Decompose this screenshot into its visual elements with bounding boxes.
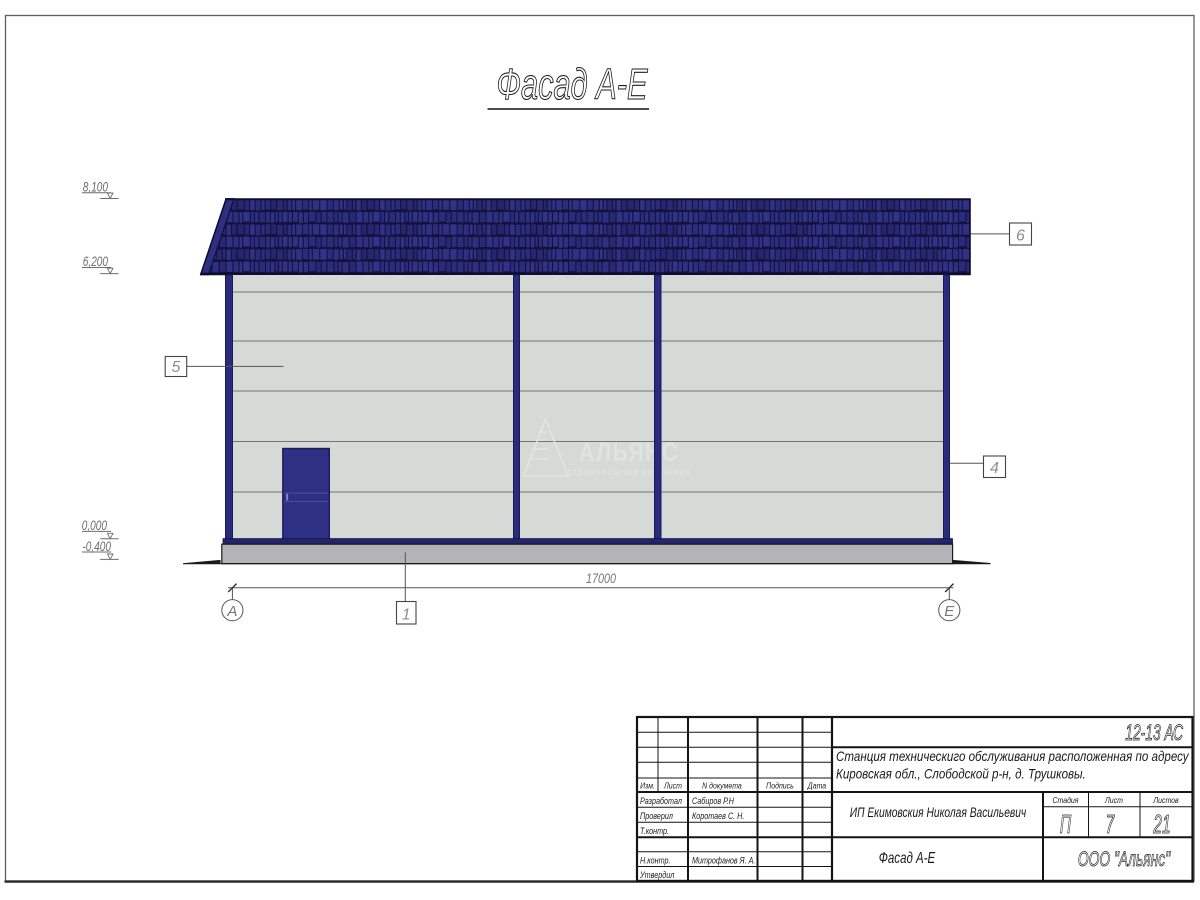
svg-text:строительная компания: строительная компания: [567, 466, 692, 478]
svg-text:Коротаев С. Н.: Коротаев С. Н.: [692, 811, 744, 821]
svg-text:5: 5: [171, 359, 180, 376]
svg-text:Лист: Лист: [663, 781, 682, 791]
svg-text:17000: 17000: [586, 571, 616, 586]
svg-text:Фасад А-Е: Фасад А-Е: [496, 61, 648, 110]
svg-text:Дата: Дата: [807, 781, 827, 791]
svg-text:Разработал: Разработал: [640, 796, 682, 806]
svg-text:1: 1: [402, 607, 411, 624]
svg-text:Е: Е: [944, 603, 955, 620]
svg-text:Лист: Лист: [1104, 795, 1123, 805]
svg-text:Н.контр.: Н.контр.: [640, 856, 671, 866]
svg-text:Кировская обл., Слободской р-н: Кировская обл., Слободской р-н, д. Трушк…: [836, 766, 1086, 782]
svg-text:12-13 АС: 12-13 АС: [1125, 720, 1183, 745]
svg-text:ООО "Альянс": ООО "Альянс": [1078, 847, 1171, 871]
svg-text:Проверил: Проверил: [640, 811, 673, 821]
svg-text:Утвердил: Утвердил: [639, 870, 675, 880]
svg-text:Станция техническиго обслужива: Станция техническиго обслуживания распол…: [836, 748, 1189, 764]
svg-text:7: 7: [1106, 810, 1115, 839]
svg-text:0,000: 0,000: [82, 518, 107, 534]
svg-text:ИП Екимовския Николая Васильев: ИП Екимовския Николая Васильевич: [850, 805, 1027, 821]
svg-text:Фасад А-Е: Фасад А-Е: [879, 848, 936, 866]
svg-text:6,200: 6,200: [83, 253, 108, 269]
svg-text:П: П: [1060, 810, 1072, 839]
svg-text:8,100: 8,100: [83, 179, 108, 195]
svg-text:-0,400: -0,400: [82, 538, 111, 554]
svg-text:6: 6: [1016, 228, 1025, 245]
svg-text:4: 4: [990, 460, 999, 477]
svg-text:21: 21: [1153, 810, 1171, 839]
svg-text:Сабиров Р.Н: Сабиров Р.Н: [692, 796, 734, 806]
svg-text:А: А: [226, 603, 237, 620]
svg-text:Митрофанов Я. А.: Митрофанов Я. А.: [692, 856, 755, 866]
svg-text:АЛЬЯНС: АЛЬЯНС: [579, 438, 678, 468]
svg-text:Изм.: Изм.: [640, 781, 655, 791]
svg-text:Листов: Листов: [1152, 795, 1178, 805]
svg-text:Стадия: Стадия: [1052, 795, 1078, 805]
svg-text:N докумета: N докумета: [702, 781, 742, 791]
svg-text:Т.контр.: Т.контр.: [640, 826, 669, 836]
svg-text:Подпись: Подпись: [766, 781, 794, 791]
